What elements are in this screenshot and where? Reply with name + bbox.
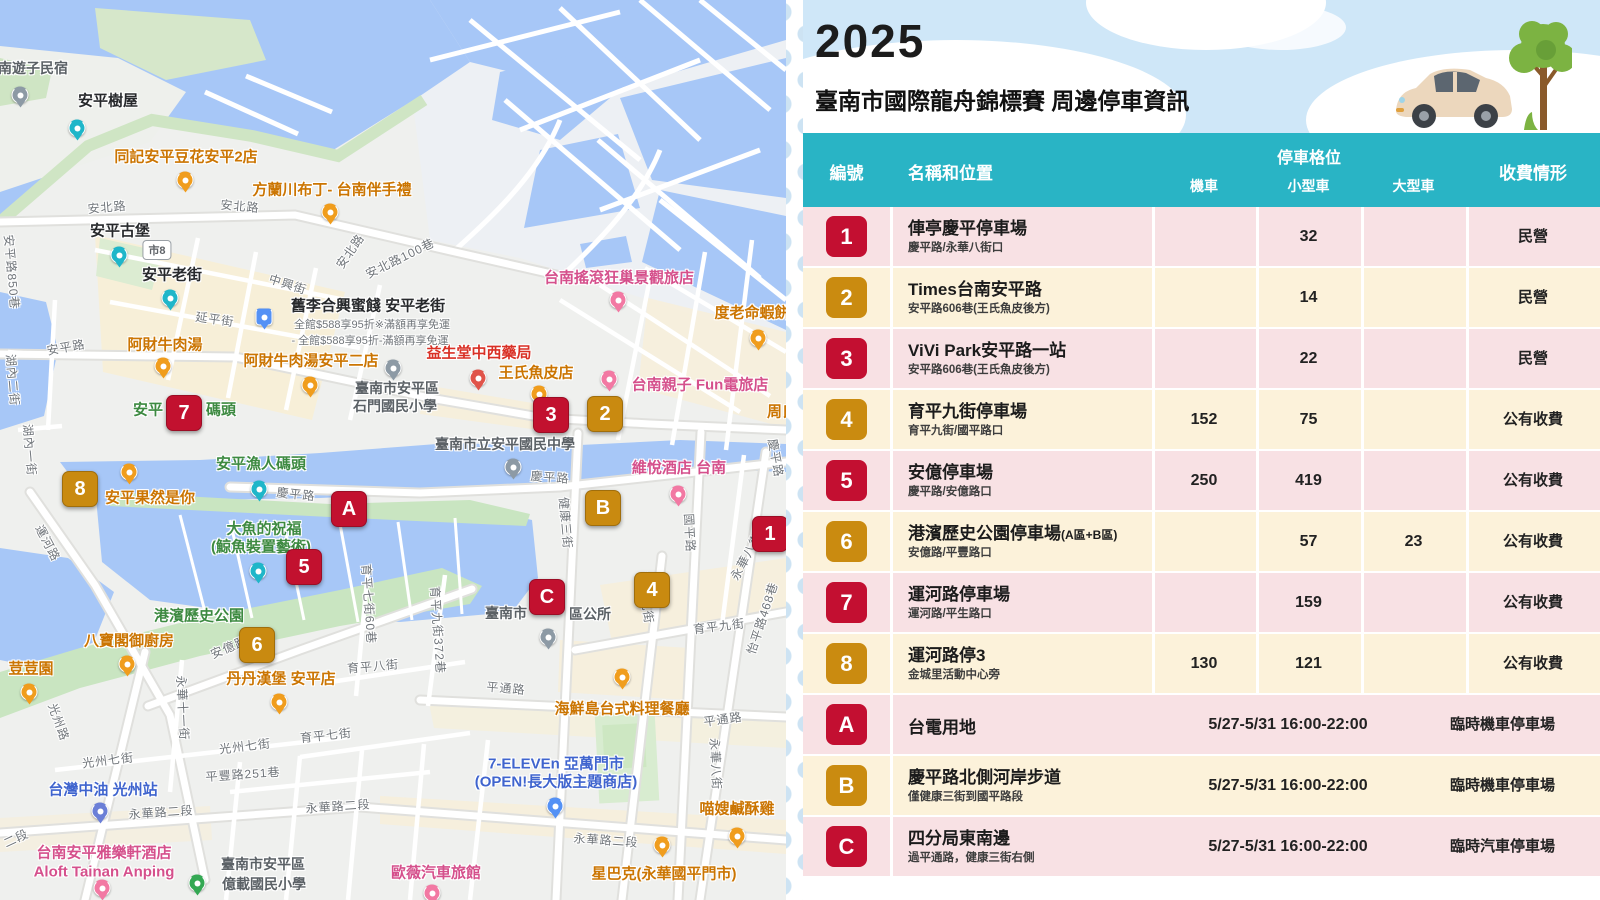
row-location: 育平九街/國平路口 — [908, 422, 1003, 438]
row-name: ViVi Park安平路一站 — [908, 336, 1066, 361]
shrimp-cracker-pin[interactable] — [750, 330, 767, 347]
row-moto-count: 130 — [1152, 634, 1256, 693]
dandan-burger-pin[interactable] — [271, 694, 288, 711]
anping-treehouse-pin[interactable] — [69, 120, 86, 137]
table-header: 編號 名稱和位置 停車格位 機車 小型車 大型車 收費情形 — [803, 133, 1600, 207]
parking-marker-A[interactable]: A — [331, 491, 367, 527]
row-location: 運河路/平生路口 — [908, 605, 992, 621]
col-header-name: 名稱和位置 — [908, 159, 993, 184]
row-badge: C — [826, 826, 867, 867]
row-badge: 7 — [826, 582, 867, 623]
row-moto-count: 152 — [1152, 390, 1256, 449]
table-row: 7運河路停車場運河路/平生路口159公有收費 — [803, 573, 1600, 632]
wave-edge-decoration — [786, 0, 803, 900]
preserved-fruit-shop-pin[interactable] — [256, 309, 273, 326]
row-badge: 5 — [826, 460, 867, 501]
anping-fort-pin[interactable] — [111, 247, 128, 264]
row-fee: 公有收費 — [1466, 512, 1600, 571]
row-badge: 1 — [826, 216, 867, 257]
row-name: 俥亭慶平停車場 — [908, 214, 1027, 239]
parking-marker-7[interactable]: 7 — [166, 395, 202, 431]
aloft-hotel-pin[interactable] — [94, 880, 111, 897]
row-name: 台電用地 — [908, 713, 976, 738]
fisherman-wharf-pin[interactable] — [251, 481, 268, 498]
row-fee: 民營 — [1466, 329, 1600, 388]
parking-marker-B[interactable]: B — [585, 490, 621, 526]
row-fee: 臨時汽車停車場 — [1415, 817, 1590, 876]
row-small-car-count: 22 — [1256, 329, 1361, 388]
row-location: 過平通路，健康三街右側 — [908, 849, 1035, 865]
row-name: 育平九街停車場 — [908, 397, 1027, 422]
acai-beef-soup-2-pin[interactable] — [302, 377, 319, 394]
row-open-time: 5/27-5/31 16:00-22:00 — [1163, 695, 1413, 754]
row-small-car-count: 57 — [1256, 512, 1361, 571]
table-rows: 1俥亭慶平停車場慶平路/永華八街口32民營2Times台南安平路安平路606巷(… — [803, 207, 1600, 878]
row-small-car-count: 121 — [1256, 634, 1361, 693]
row-badge: A — [826, 704, 867, 745]
row-small-car-count: 419 — [1256, 451, 1361, 510]
screenshot-root: 安北路安北路安北路安北路100巷中興街延平街安平路850巷安平路湖內二街湖內一街… — [0, 0, 1600, 900]
row-large-car-count: 23 — [1361, 512, 1466, 571]
row-name: Times台南安平路 — [908, 275, 1042, 300]
seven-eleven-pin[interactable] — [547, 798, 564, 815]
row-name: 慶平路北側河岸步道 — [908, 763, 1061, 788]
table-row: 3ViVi Park安平路一站安平路606巷(王氏魚皮後方)22民營 — [803, 329, 1600, 388]
row-open-time: 5/27-5/31 16:00-22:00 — [1163, 817, 1413, 876]
table-row: 8運河路停3金城里活動中心旁130121公有收費 — [803, 634, 1600, 693]
row-fee: 公有收費 — [1466, 451, 1600, 510]
babaoge-restaurant-pin[interactable] — [119, 656, 136, 673]
poster-title: 臺南市國際龍舟錦標賽 周邊停車資訊 — [815, 82, 1189, 116]
row-fee: 臨時機車停車場 — [1415, 695, 1590, 754]
table-row: C四分局東南邊過平通路，健康三街右側5/27-5/31 16:00-22:00臨… — [803, 817, 1600, 876]
row-small-car-count: 159 — [1256, 573, 1361, 632]
guesthouse-pin[interactable] — [12, 87, 29, 104]
table-row: 6港濱歷史公園停車場(A區+B區)安億路/平豐路口5723公有收費 — [803, 512, 1600, 571]
district-office-pin[interactable] — [540, 629, 557, 646]
row-fee: 公有收費 — [1466, 390, 1600, 449]
row-small-car-count: 75 — [1256, 390, 1361, 449]
row-location: 安億路/平豐路口 — [908, 544, 992, 560]
parking-marker-3[interactable]: 3 — [533, 397, 569, 433]
seafood-island-pin[interactable] — [614, 669, 631, 686]
anping-drink-shop-pin[interactable] — [121, 464, 138, 481]
starbucks-pin[interactable] — [654, 837, 671, 854]
map[interactable]: 安北路安北路安北路安北路100巷中興街延平街安平路850巷安平路湖內二街湖內一街… — [0, 0, 786, 900]
row-fee: 民營 — [1466, 207, 1600, 266]
doudouyuan-pin[interactable] — [21, 684, 38, 701]
row-badge: 3 — [826, 338, 867, 379]
whale-art-pin[interactable] — [250, 563, 267, 580]
parking-marker-C[interactable]: C — [529, 579, 565, 615]
col-header-large: 大型車 — [1361, 176, 1466, 196]
row-name: 運河路停3 — [908, 641, 985, 666]
row-name: 安億停車場 — [908, 458, 993, 483]
row-small-car-count: 14 — [1256, 268, 1361, 327]
row-location: 慶平路/安億路口 — [908, 483, 992, 499]
rock-hostel-pin[interactable] — [610, 292, 627, 309]
parking-marker-2[interactable]: 2 — [587, 396, 623, 432]
shimen-elementary-pin[interactable] — [385, 360, 402, 377]
row-location: 安平路606巷(王氏魚皮後方) — [908, 300, 1050, 316]
row-fee: 公有收費 — [1466, 573, 1600, 632]
col-header-group: 停車格位 — [1152, 144, 1466, 168]
row-small-car-count: 32 — [1256, 207, 1361, 266]
parking-info-poster: 2025 臺南市國際龍舟錦標賽 周邊停車資訊 編號 — [786, 0, 1600, 900]
route-shield: 市8 — [142, 240, 171, 260]
row-fee: 公有收費 — [1466, 634, 1600, 693]
map-base — [0, 0, 786, 900]
column-divider — [1152, 207, 1155, 693]
column-divider — [1256, 207, 1259, 693]
ouwei-motel-pin[interactable] — [424, 885, 441, 900]
row-fee: 民營 — [1466, 268, 1600, 327]
row-location: 安平路606巷(王氏魚皮後方) — [908, 361, 1050, 377]
parking-marker-4[interactable]: 4 — [634, 572, 670, 608]
row-name: 運河路停車場 — [908, 580, 1010, 605]
row-name-suffix: (A區+B區) — [1061, 528, 1117, 542]
table-row: B慶平路北側河岸步道僅健康三街到國平路段5/27-5/31 16:00-22:0… — [803, 756, 1600, 815]
row-name: 港濱歷史公園停車場(A區+B區) — [908, 519, 1117, 544]
row-badge: 6 — [826, 521, 867, 562]
col-header-small: 小型車 — [1256, 176, 1361, 196]
row-badge: 8 — [826, 643, 867, 684]
row-open-time: 5/27-5/31 16:00-22:00 — [1163, 756, 1413, 815]
parking-marker-8[interactable]: 8 — [62, 471, 98, 507]
cpc-gas-station-pin[interactable] — [92, 803, 109, 820]
col-header-id: 編號 — [803, 159, 890, 184]
row-name: 四分局東南邊 — [908, 824, 1010, 849]
acai-beef-soup-pin[interactable] — [155, 358, 172, 375]
row-badge: 4 — [826, 399, 867, 440]
col-header-moto: 機車 — [1152, 176, 1256, 196]
fun-hotel-pin[interactable] — [601, 371, 618, 388]
poster-year: 2025 — [815, 14, 925, 68]
cloud-shape — [1216, 5, 1346, 50]
table-row: 4育平九街停車場育平九街/國平路口15275公有收費 — [803, 390, 1600, 449]
fanglanchuan-pudding-pin[interactable] — [322, 204, 339, 221]
row-location: 慶平路/永華八街口 — [908, 239, 1003, 255]
column-divider — [1466, 207, 1469, 693]
pharmacy-pin[interactable] — [470, 370, 487, 387]
row-badge: 2 — [826, 277, 867, 318]
tongji-tofu-pudding-pin[interactable] — [177, 172, 194, 189]
table-row: 2Times台南安平路安平路606巷(王氏魚皮後方)14民營 — [803, 268, 1600, 327]
parking-marker-5[interactable]: 5 — [286, 549, 322, 585]
car-body — [1396, 69, 1512, 128]
row-location: 僅健康三街到國平路段 — [908, 788, 1023, 804]
wei-yat-hotel-pin[interactable] — [670, 486, 687, 503]
row-fee: 臨時機車停車場 — [1415, 756, 1590, 815]
car-and-tree-illustration — [1382, 16, 1572, 134]
anping-junior-high-pin[interactable] — [505, 459, 522, 476]
salty-chicken-pin[interactable] — [729, 828, 746, 845]
yizai-elementary-pin[interactable] — [189, 875, 206, 892]
table-row: 5安億停車場慶平路/安億路口250419公有收費 — [803, 451, 1600, 510]
row-moto-count: 250 — [1152, 451, 1256, 510]
row-badge: B — [826, 765, 867, 806]
table-row: A台電用地5/27-5/31 16:00-22:00臨時機車停車場 — [803, 695, 1600, 754]
column-divider — [890, 207, 893, 878]
table-row: 1俥亭慶平停車場慶平路/永華八街口32民營 — [803, 207, 1600, 266]
column-divider — [1361, 207, 1364, 693]
col-header-fee: 收費情形 — [1466, 159, 1600, 184]
row-location: 金城里活動中心旁 — [908, 666, 1000, 682]
anping-old-street-pin[interactable] — [162, 290, 179, 307]
parking-marker-1[interactable]: 1 — [752, 516, 786, 552]
parking-marker-6[interactable]: 6 — [239, 627, 275, 663]
